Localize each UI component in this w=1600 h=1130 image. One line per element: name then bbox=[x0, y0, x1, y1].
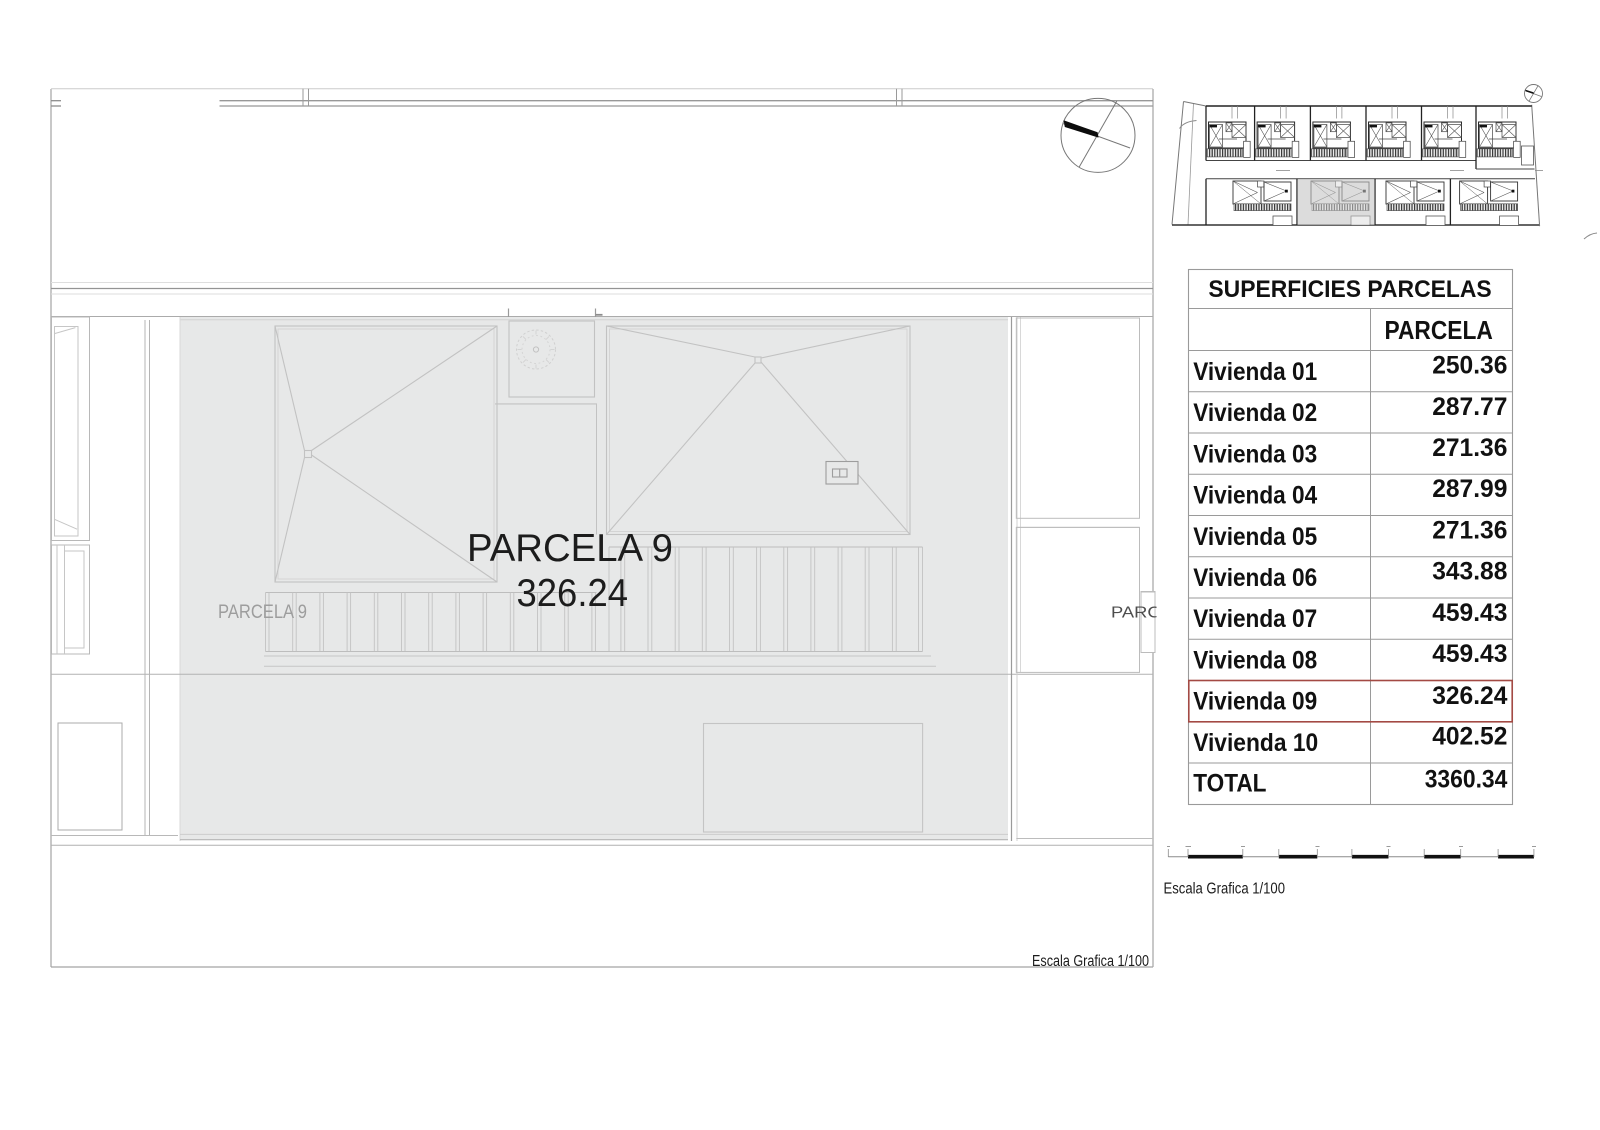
svg-text:271.36: 271.36 bbox=[1432, 434, 1507, 462]
svg-text:SUPERFICIES PARCELAS: SUPERFICIES PARCELAS bbox=[1208, 276, 1491, 303]
svg-text:Vivienda 03: Vivienda 03 bbox=[1193, 441, 1317, 468]
svg-text:3360.34: 3360.34 bbox=[1425, 766, 1508, 794]
svg-text:PARCELA 9: PARCELA 9 bbox=[218, 602, 307, 623]
svg-text:Escala Grafica 1/100: Escala Grafica 1/100 bbox=[1164, 881, 1286, 898]
svg-text:271.36: 271.36 bbox=[1432, 516, 1507, 544]
svg-text:459.43: 459.43 bbox=[1432, 599, 1507, 627]
svg-text:459.43: 459.43 bbox=[1432, 640, 1507, 668]
svg-text:326.24: 326.24 bbox=[517, 572, 629, 615]
svg-text:Vivienda 01: Vivienda 01 bbox=[1193, 359, 1317, 386]
svg-text:Vivienda 09: Vivienda 09 bbox=[1193, 689, 1317, 716]
svg-text:287.99: 287.99 bbox=[1432, 475, 1507, 503]
svg-text:Vivienda 10: Vivienda 10 bbox=[1193, 730, 1318, 757]
svg-text:402.52: 402.52 bbox=[1432, 722, 1507, 750]
svg-text:343.88: 343.88 bbox=[1432, 558, 1507, 586]
svg-text:Vivienda 02: Vivienda 02 bbox=[1193, 400, 1317, 427]
svg-text:250.36: 250.36 bbox=[1432, 352, 1507, 380]
svg-text:326.24: 326.24 bbox=[1432, 682, 1507, 710]
svg-text:PARCELA: PARCELA bbox=[1385, 315, 1493, 345]
svg-text:PARCELA 9: PARCELA 9 bbox=[467, 527, 673, 570]
svg-text:Vivienda 07: Vivienda 07 bbox=[1193, 606, 1317, 633]
svg-text:Vivienda 05: Vivienda 05 bbox=[1193, 524, 1317, 551]
svg-text:Vivienda 06: Vivienda 06 bbox=[1193, 565, 1317, 592]
svg-text:Vivienda 08: Vivienda 08 bbox=[1193, 647, 1317, 674]
svg-text:287.77: 287.77 bbox=[1432, 393, 1507, 421]
svg-text:Escala Grafica 1/100: Escala Grafica 1/100 bbox=[1032, 953, 1149, 970]
svg-text:TOTAL: TOTAL bbox=[1193, 770, 1266, 797]
svg-text:Vivienda 04: Vivienda 04 bbox=[1193, 483, 1317, 510]
